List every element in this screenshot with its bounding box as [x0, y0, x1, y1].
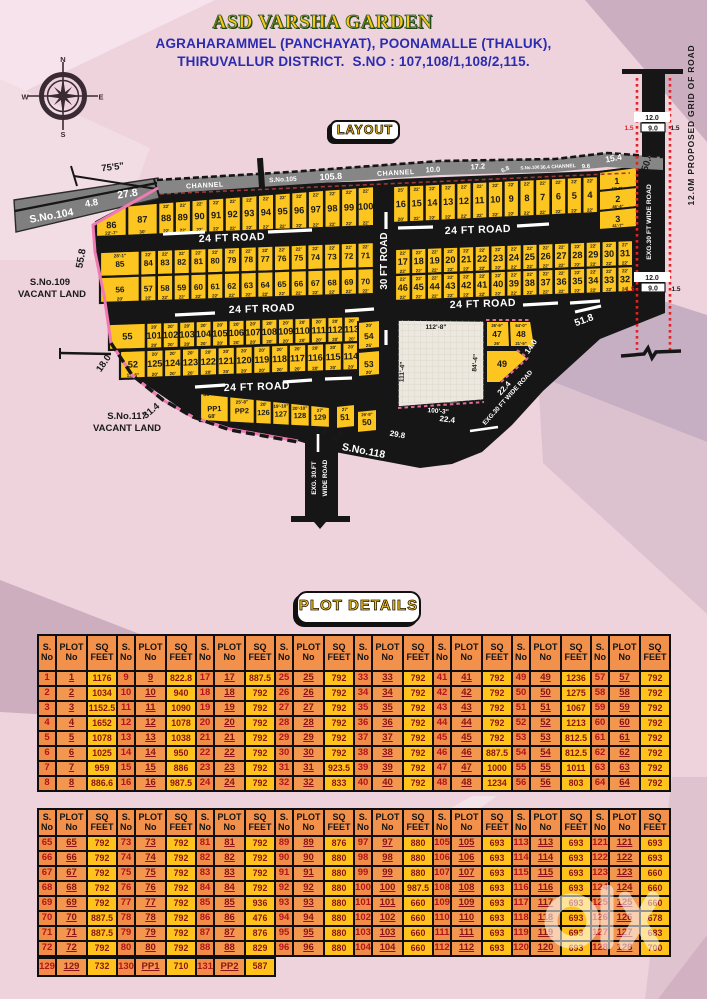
svg-text:61: 61 — [210, 282, 220, 291]
svg-text:22': 22' — [508, 182, 514, 187]
svg-text:93: 93 — [244, 208, 255, 218]
svg-text:22': 22' — [163, 204, 169, 209]
svg-text:22': 22' — [431, 294, 437, 299]
svg-text:105: 105 — [212, 328, 228, 339]
svg-text:47: 47 — [492, 329, 502, 339]
svg-text:64: 64 — [261, 280, 271, 289]
svg-text:20': 20' — [152, 372, 158, 377]
svg-text:86: 86 — [106, 220, 117, 230]
svg-text:20': 20' — [332, 337, 338, 342]
svg-text:S.No.109: S.No.109 — [30, 277, 70, 288]
svg-text:22': 22' — [495, 265, 501, 270]
svg-text:22': 22' — [413, 216, 419, 221]
svg-text:125: 125 — [147, 358, 163, 369]
svg-text:22': 22' — [400, 269, 406, 274]
svg-text:22': 22' — [362, 288, 368, 293]
svg-text:29'-8": 29'-8" — [361, 412, 373, 418]
svg-text:22': 22' — [162, 295, 168, 300]
svg-text:45: 45 — [413, 282, 424, 292]
svg-text:20': 20' — [241, 348, 247, 353]
svg-text:20': 20' — [348, 318, 354, 323]
svg-text:20': 20' — [259, 348, 265, 353]
svg-text:43: 43 — [445, 281, 456, 291]
svg-text:20': 20' — [330, 345, 336, 350]
svg-text:20': 20' — [266, 339, 272, 344]
svg-text:27: 27 — [556, 251, 567, 261]
svg-text:22': 22' — [180, 203, 186, 208]
svg-text:19'-10": 19'-10" — [273, 403, 288, 409]
svg-text:20': 20' — [348, 364, 354, 369]
svg-text:111: 111 — [311, 325, 326, 335]
svg-text:20': 20' — [117, 296, 123, 301]
svg-text:14: 14 — [427, 197, 438, 207]
svg-text:20': 20' — [250, 321, 256, 326]
svg-text:PP1: PP1 — [207, 404, 221, 413]
svg-text:22': 22' — [246, 225, 252, 230]
svg-text:22': 22' — [295, 291, 301, 296]
svg-text:72: 72 — [344, 252, 354, 261]
svg-text:22': 22' — [312, 246, 318, 251]
svg-text:46'-4": 46'-4" — [612, 204, 624, 210]
svg-text:88: 88 — [161, 213, 172, 223]
svg-text:22': 22' — [461, 184, 467, 189]
svg-text:25': 25' — [398, 187, 404, 192]
svg-text:20': 20' — [294, 366, 300, 371]
svg-text:15: 15 — [411, 198, 422, 208]
svg-text:22': 22' — [590, 243, 596, 248]
svg-text:24: 24 — [509, 252, 520, 262]
svg-text:60: 60 — [194, 283, 204, 292]
svg-text:26: 26 — [540, 251, 551, 261]
svg-text:24 FT ROAD: 24 FT ROAD — [224, 380, 291, 394]
svg-text:127: 127 — [275, 409, 288, 418]
svg-text:20': 20' — [223, 369, 229, 374]
svg-text:22': 22' — [212, 250, 218, 255]
svg-text:9.6: 9.6 — [582, 164, 591, 170]
svg-text:35: 35 — [572, 276, 583, 286]
svg-text:11: 11 — [475, 195, 485, 205]
svg-text:105.8: 105.8 — [319, 171, 342, 182]
svg-text:22': 22' — [511, 265, 517, 270]
svg-text:20': 20' — [312, 366, 318, 371]
svg-text:22': 22' — [145, 252, 151, 257]
svg-text:20': 20' — [332, 319, 338, 324]
svg-text:24 FT ROAD: 24 FT ROAD — [445, 223, 512, 237]
svg-text:37: 37 — [540, 277, 551, 287]
svg-text:96: 96 — [294, 205, 305, 215]
svg-text:22': 22' — [279, 195, 285, 200]
svg-text:47'-6": 47'-6" — [611, 186, 623, 192]
svg-text:22': 22' — [495, 273, 501, 278]
svg-text:VACANT LAND: VACANT LAND — [93, 423, 161, 434]
svg-text:22': 22' — [312, 290, 318, 295]
svg-text:16: 16 — [396, 199, 407, 209]
svg-text:22': 22' — [543, 245, 549, 250]
svg-text:22': 22' — [590, 262, 596, 267]
svg-text:22': 22' — [463, 266, 469, 271]
svg-text:22': 22' — [195, 294, 201, 299]
svg-text:1.5: 1.5 — [625, 286, 634, 293]
svg-text:20': 20' — [283, 338, 289, 343]
svg-text:22': 22' — [558, 263, 564, 268]
svg-text:27': 27' — [342, 407, 348, 412]
svg-text:1.5: 1.5 — [624, 125, 633, 132]
svg-text:1.5: 1.5 — [671, 286, 680, 293]
svg-text:4.8: 4.8 — [84, 197, 99, 210]
svg-text:31: 31 — [620, 248, 631, 258]
svg-text:20': 20' — [217, 341, 223, 346]
svg-text:57: 57 — [144, 284, 154, 293]
svg-text:20': 20' — [348, 336, 354, 341]
svg-text:12.0: 12.0 — [645, 275, 659, 282]
svg-text:46: 46 — [398, 283, 409, 293]
svg-text:81: 81 — [194, 257, 204, 266]
svg-text:29: 29 — [588, 249, 599, 259]
svg-text:21'-5": 21'-5" — [515, 341, 526, 346]
svg-text:22': 22' — [558, 245, 564, 250]
svg-text:22': 22' — [296, 194, 302, 199]
svg-text:122: 122 — [200, 356, 216, 367]
svg-text:7: 7 — [540, 192, 545, 202]
svg-text:22': 22' — [313, 192, 319, 197]
svg-text:22'-7": 22'-7" — [105, 230, 118, 235]
svg-text:109: 109 — [278, 326, 294, 337]
svg-text:22': 22' — [196, 201, 202, 206]
svg-text:41: 41 — [477, 280, 488, 290]
svg-text:83: 83 — [160, 258, 170, 267]
svg-text:22': 22' — [279, 224, 285, 229]
svg-text:22': 22' — [590, 288, 596, 293]
svg-text:20': 20' — [169, 371, 175, 376]
svg-text:22': 22' — [346, 190, 352, 195]
svg-text:114: 114 — [343, 351, 359, 362]
svg-text:20': 20' — [217, 322, 223, 327]
svg-text:22': 22' — [195, 250, 201, 255]
svg-text:22': 22' — [416, 250, 422, 255]
svg-text:121: 121 — [218, 356, 234, 367]
svg-text:20': 20' — [233, 340, 239, 345]
svg-text:128: 128 — [294, 411, 307, 420]
svg-text:22': 22' — [329, 191, 335, 196]
svg-text:22': 22' — [162, 251, 168, 256]
svg-text:22': 22' — [606, 261, 612, 266]
svg-text:5: 5 — [572, 191, 577, 201]
svg-text:20': 20' — [169, 351, 175, 356]
svg-text:62: 62 — [227, 282, 237, 291]
svg-text:22': 22' — [492, 183, 498, 188]
svg-text:20': 20' — [299, 338, 305, 343]
svg-text:20': 20' — [200, 323, 206, 328]
svg-text:22': 22' — [571, 179, 577, 184]
svg-text:20': 20' — [259, 368, 265, 373]
svg-text:28: 28 — [572, 250, 583, 260]
svg-text:70: 70 — [361, 277, 371, 286]
svg-text:20': 20' — [260, 402, 266, 407]
svg-text:51: 51 — [340, 412, 350, 422]
svg-text:22': 22' — [495, 291, 501, 296]
svg-text:65: 65 — [277, 280, 287, 289]
svg-text:119: 119 — [254, 354, 269, 365]
svg-text:22': 22' — [263, 224, 269, 229]
svg-text:22': 22' — [431, 249, 437, 254]
svg-text:22': 22' — [527, 264, 533, 269]
svg-text:20': 20' — [398, 217, 404, 222]
svg-text:2: 2 — [615, 194, 621, 204]
svg-text:27.6: 27.6 — [243, 421, 263, 434]
svg-text:22': 22' — [213, 226, 219, 231]
svg-text:22': 22' — [524, 181, 530, 186]
svg-text:22': 22' — [329, 245, 335, 250]
svg-text:22': 22' — [445, 214, 451, 219]
svg-text:22': 22' — [229, 293, 235, 298]
svg-text:20': 20' — [152, 352, 158, 357]
svg-text:21: 21 — [461, 254, 472, 264]
svg-text:20': 20' — [167, 324, 173, 329]
svg-text:22': 22' — [279, 247, 285, 252]
svg-text:28'-1": 28'-1" — [114, 253, 127, 258]
svg-text:20': 20' — [200, 341, 206, 346]
svg-text:22': 22' — [431, 268, 437, 273]
svg-text:22': 22' — [479, 274, 485, 279]
svg-text:20': 20' — [348, 344, 354, 349]
svg-text:22': 22' — [447, 293, 453, 298]
svg-text:98: 98 — [327, 203, 338, 213]
svg-text:EXG.30 FT WIDE ROAD: EXG.30 FT WIDE ROAD — [646, 184, 653, 260]
svg-text:22': 22' — [479, 248, 485, 253]
svg-text:68': 68' — [208, 414, 217, 421]
svg-text:VACANT LAND: VACANT LAND — [18, 289, 86, 300]
svg-text:41'-7": 41'-7" — [612, 223, 624, 229]
svg-text:115: 115 — [326, 352, 341, 363]
svg-text:99: 99 — [344, 202, 355, 212]
svg-text:39: 39 — [509, 278, 520, 288]
svg-text:24 FT ROAD: 24 FT ROAD — [229, 302, 296, 316]
svg-text:22': 22' — [229, 249, 235, 254]
svg-text:56: 56 — [115, 285, 125, 294]
svg-text:22': 22' — [587, 207, 593, 212]
svg-text:36: 36 — [556, 277, 567, 287]
svg-text:80: 80 — [210, 256, 220, 265]
svg-text:22': 22' — [492, 212, 498, 217]
svg-text:22': 22' — [463, 248, 469, 253]
svg-text:27': 27' — [317, 408, 323, 413]
svg-text:22': 22' — [543, 271, 549, 276]
svg-text:22': 22' — [511, 291, 517, 296]
svg-text:10.0: 10.0 — [425, 165, 440, 175]
svg-text:22': 22' — [296, 223, 302, 228]
svg-text:20': 20' — [205, 370, 211, 375]
svg-text:22': 22' — [479, 266, 485, 271]
svg-text:19: 19 — [429, 255, 440, 265]
svg-text:26'-9": 26'-9" — [491, 323, 502, 328]
svg-text:42: 42 — [461, 280, 472, 290]
svg-text:22': 22' — [571, 208, 577, 213]
svg-text:22': 22' — [346, 289, 352, 294]
svg-text:89: 89 — [178, 212, 189, 222]
svg-text:85: 85 — [115, 260, 125, 269]
svg-text:20': 20' — [276, 347, 282, 352]
svg-text:20': 20' — [366, 370, 372, 375]
svg-text:22': 22' — [416, 268, 422, 273]
svg-text:40: 40 — [493, 279, 504, 289]
svg-text:22': 22' — [230, 226, 236, 231]
svg-text:20': 20' — [151, 343, 157, 348]
svg-text:84: 84 — [144, 259, 154, 268]
svg-text:20': 20' — [223, 349, 229, 354]
svg-text:PP2: PP2 — [235, 406, 249, 415]
svg-text:22': 22' — [429, 215, 435, 220]
svg-text:34: 34 — [588, 275, 599, 285]
svg-text:20': 20' — [167, 342, 173, 347]
svg-text:22': 22' — [447, 275, 453, 280]
svg-text:22': 22' — [346, 245, 352, 250]
svg-text:112: 112 — [328, 325, 343, 336]
svg-text:22': 22' — [245, 248, 251, 253]
svg-text:22': 22' — [362, 244, 368, 249]
svg-text:22': 22' — [622, 260, 628, 265]
svg-text:113: 113 — [344, 324, 359, 335]
svg-text:22': 22' — [587, 178, 593, 183]
svg-text:22': 22' — [413, 187, 419, 192]
svg-text:20: 20 — [445, 255, 456, 265]
svg-text:48: 48 — [516, 329, 526, 339]
svg-text:82: 82 — [177, 258, 187, 267]
svg-text:44: 44 — [429, 281, 440, 291]
svg-text:22': 22' — [329, 222, 335, 227]
svg-text:75: 75 — [294, 253, 304, 262]
svg-text:22': 22' — [245, 292, 251, 297]
svg-text:10: 10 — [490, 194, 501, 204]
svg-text:100: 100 — [358, 201, 374, 212]
svg-text:S: S — [60, 130, 65, 139]
svg-text:22': 22' — [416, 294, 422, 299]
svg-text:64'-0": 64'-0" — [515, 323, 526, 328]
svg-text:63: 63 — [244, 281, 254, 290]
svg-text:9.0: 9.0 — [648, 286, 658, 293]
svg-text:22': 22' — [463, 292, 469, 297]
svg-text:22': 22' — [329, 289, 335, 294]
svg-text:22': 22' — [416, 276, 422, 281]
svg-text:20': 20' — [283, 320, 289, 325]
svg-text:87: 87 — [137, 214, 148, 224]
svg-text:22': 22' — [508, 211, 514, 216]
svg-text:22': 22' — [431, 275, 437, 280]
svg-text:38: 38 — [525, 278, 536, 288]
svg-text:94: 94 — [261, 207, 272, 217]
svg-text:104: 104 — [196, 329, 213, 340]
svg-text:22': 22' — [555, 209, 561, 214]
svg-text:S.No.105: S.No.105 — [269, 176, 297, 184]
svg-text:22': 22' — [527, 290, 533, 295]
svg-text:25': 25' — [366, 343, 372, 348]
svg-text:110: 110 — [295, 326, 310, 337]
svg-text:W: W — [21, 93, 29, 102]
svg-text:32: 32 — [620, 274, 631, 284]
svg-text:12.0: 12.0 — [645, 115, 659, 122]
svg-text:103: 103 — [179, 329, 195, 340]
svg-text:22': 22' — [346, 221, 352, 226]
svg-text:22': 22' — [400, 277, 406, 282]
svg-text:22': 22' — [527, 272, 533, 277]
svg-text:79: 79 — [227, 256, 237, 265]
svg-text:20': 20' — [316, 319, 322, 324]
svg-text:77: 77 — [261, 255, 271, 264]
svg-text:30 FT ROAD: 30 FT ROAD — [379, 232, 390, 289]
svg-text:68: 68 — [327, 278, 337, 287]
svg-text:WIDE ROAD: WIDE ROAD — [322, 459, 329, 496]
svg-text:54: 54 — [364, 331, 374, 341]
svg-text:22': 22' — [495, 247, 501, 252]
svg-text:116: 116 — [308, 352, 323, 363]
svg-text:20': 20' — [266, 321, 272, 326]
svg-text:126: 126 — [257, 408, 270, 417]
svg-text:97: 97 — [311, 204, 322, 214]
svg-text:22': 22' — [263, 196, 269, 201]
svg-text:108: 108 — [262, 327, 278, 338]
svg-text:22': 22' — [363, 220, 369, 225]
svg-text:20': 20' — [312, 346, 318, 351]
svg-text:22': 22' — [262, 292, 268, 297]
svg-text:22': 22' — [590, 269, 596, 274]
svg-text:22': 22' — [543, 263, 549, 268]
svg-text:20': 20' — [187, 370, 193, 375]
svg-text:22': 22' — [476, 213, 482, 218]
svg-text:20': 20' — [184, 342, 190, 347]
svg-text:67: 67 — [311, 279, 321, 288]
svg-text:26': 26' — [494, 341, 500, 346]
svg-text:30: 30 — [604, 249, 615, 259]
svg-text:22': 22' — [262, 248, 268, 253]
svg-text:1.5: 1.5 — [670, 125, 679, 132]
svg-text:22': 22' — [574, 270, 580, 275]
svg-text:20': 20' — [184, 323, 190, 328]
svg-text:17.2: 17.2 — [470, 162, 485, 172]
svg-text:20': 20' — [151, 324, 157, 329]
svg-text:20'-10": 20'-10" — [292, 406, 307, 412]
svg-text:22': 22' — [213, 200, 219, 205]
svg-text:S.No.106: S.No.106 — [520, 164, 540, 170]
svg-text:90: 90 — [194, 211, 205, 221]
svg-text:9.4: 9.4 — [313, 425, 328, 438]
svg-text:76: 76 — [277, 254, 287, 263]
svg-text:50: 50 — [362, 417, 372, 427]
svg-text:1: 1 — [614, 176, 620, 186]
svg-text:23: 23 — [493, 253, 504, 263]
svg-text:55: 55 — [122, 331, 133, 341]
svg-text:22': 22' — [479, 292, 485, 297]
svg-text:22': 22' — [313, 222, 319, 227]
svg-text:22': 22' — [540, 210, 546, 215]
svg-text:8: 8 — [524, 193, 529, 203]
svg-text:22': 22' — [463, 274, 469, 279]
svg-text:22': 22' — [447, 249, 453, 254]
svg-text:20': 20' — [250, 339, 256, 344]
svg-text:22': 22' — [558, 289, 564, 294]
svg-text:20': 20' — [299, 320, 305, 325]
svg-text:53: 53 — [364, 359, 374, 369]
svg-text:24 FT ROAD: 24 FT ROAD — [450, 297, 517, 311]
svg-text:S.No.117: S.No.117 — [107, 411, 147, 422]
svg-text:22': 22' — [606, 269, 612, 274]
svg-text:91: 91 — [211, 210, 222, 220]
svg-text:13: 13 — [443, 197, 454, 207]
svg-text:129: 129 — [314, 412, 327, 421]
svg-text:59: 59 — [177, 283, 187, 292]
svg-text:22': 22' — [179, 251, 185, 256]
svg-text:22': 22' — [400, 295, 406, 300]
svg-text:22': 22' — [461, 214, 467, 219]
svg-text:22': 22' — [447, 267, 453, 272]
